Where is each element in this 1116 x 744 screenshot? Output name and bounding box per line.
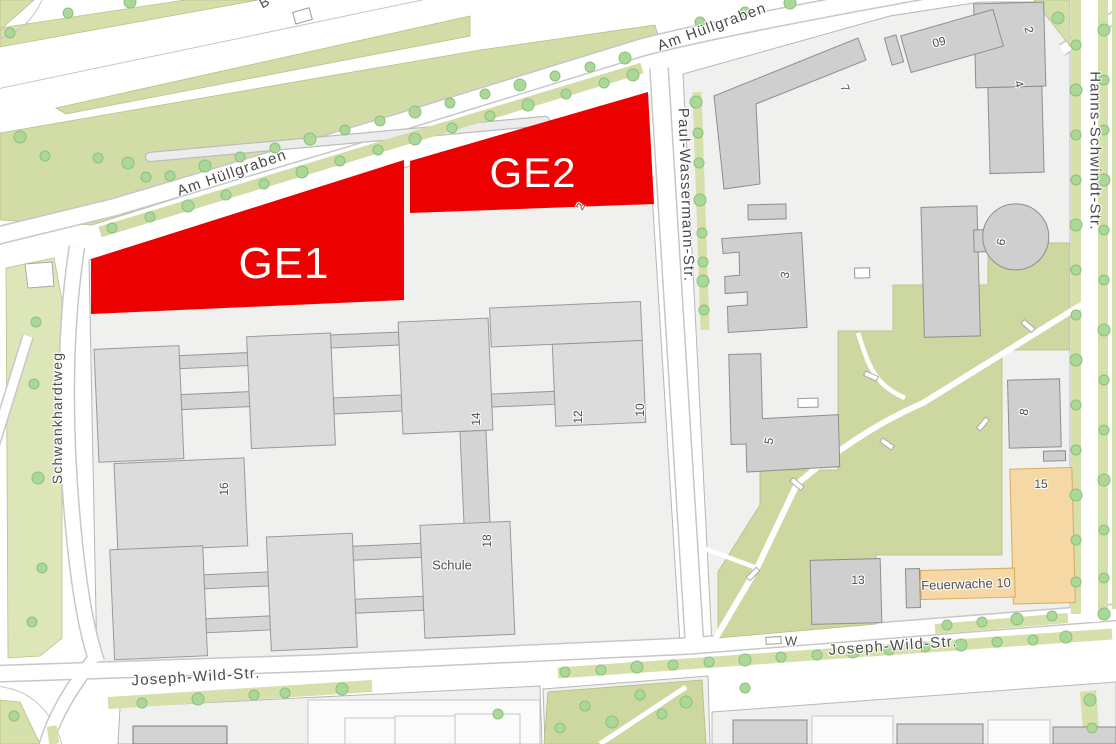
tree-icon (259, 179, 269, 189)
tree-icon (812, 650, 822, 660)
tree-icon (1047, 611, 1057, 621)
housenumber-16: 16 (217, 482, 231, 495)
building-6 (921, 206, 980, 337)
tree-icon (40, 151, 50, 161)
tree-icon (694, 158, 704, 168)
building-grey (733, 720, 807, 744)
tree-icon (699, 305, 709, 315)
tree-icon (296, 166, 308, 178)
tree-icon (668, 660, 678, 670)
tree-icon (1071, 175, 1081, 185)
building-small (748, 204, 786, 220)
school-building (110, 546, 208, 660)
housenumber-18: 18 (480, 534, 494, 547)
tree-icon (522, 99, 534, 111)
plaza-structure (798, 398, 818, 408)
tree-icon (1060, 631, 1072, 643)
tree-icon (1098, 324, 1110, 336)
tree-icon (199, 160, 211, 172)
tree-icon (1028, 635, 1038, 645)
tree-icon (335, 156, 345, 166)
school-corridor (355, 596, 424, 613)
tree-icon (445, 98, 455, 108)
school-corridor (179, 353, 250, 369)
tree-icon (514, 79, 526, 91)
tree-icon (1071, 130, 1081, 140)
building-grey (1053, 727, 1116, 744)
tree-icon (409, 106, 421, 118)
tree-icon (942, 620, 952, 630)
school-building (94, 346, 184, 463)
school-building-schule (420, 521, 515, 638)
zone-label-ge2: GE2 (489, 149, 576, 197)
building-grey (133, 726, 227, 744)
school-corridor (206, 616, 271, 633)
tree-icon (29, 379, 39, 389)
green-sw-corner (0, 700, 40, 744)
tree-icon (409, 133, 421, 145)
tree-icon (137, 698, 147, 708)
tree-icon (493, 709, 503, 719)
tree-icon (596, 665, 606, 675)
housenumber-13: 13 (851, 573, 864, 587)
tree-icon (1099, 425, 1109, 435)
tree-icon (690, 96, 702, 108)
school-corridor (353, 543, 422, 560)
tree-icon (1099, 275, 1109, 285)
school-corridor (460, 430, 490, 526)
tree-icon (977, 617, 987, 627)
tree-icon (1098, 608, 1110, 620)
tree-icon (480, 89, 490, 99)
tree-icon (599, 78, 609, 88)
tree-icon (560, 667, 570, 677)
tree-icon (124, 0, 136, 8)
building-grey (897, 724, 983, 744)
tree-icon (485, 111, 495, 121)
school-building (552, 340, 645, 426)
tree-icon (447, 123, 457, 133)
tree-icon (619, 52, 631, 64)
tree-icon (336, 683, 348, 695)
tree-icon (192, 693, 204, 705)
tree-icon (5, 28, 15, 38)
tree-icon (1070, 489, 1082, 501)
street-label-hanns-schwindt: Hanns-Schwindt-Str. (1087, 71, 1104, 231)
tree-icon (1099, 525, 1109, 535)
school-corridor (204, 572, 269, 589)
tree-icon (141, 172, 151, 182)
tree-icon (776, 652, 786, 662)
tree-icon (145, 212, 155, 222)
tree-icon (1087, 723, 1097, 733)
school-building (114, 458, 248, 552)
tree-icon (32, 472, 44, 484)
tree-icon (555, 723, 565, 733)
school-building (266, 533, 357, 651)
tree-icon (561, 89, 571, 99)
tree-icon (107, 223, 117, 233)
tree-icon (1070, 84, 1082, 96)
building-outline-block (308, 700, 540, 744)
tree-icon (1071, 445, 1081, 455)
tree-icon (627, 69, 639, 81)
tree-icon (1011, 613, 1023, 625)
tree-icon (697, 275, 709, 287)
tree-icon (1098, 24, 1110, 36)
building-4 (988, 86, 1044, 173)
tree-icon (280, 688, 290, 698)
tree-icon (704, 657, 714, 667)
school-corridor (333, 395, 402, 414)
tree-icon (1071, 577, 1081, 587)
tree-icon (697, 228, 707, 238)
housenumber-15: 15 (1034, 477, 1047, 491)
building-grey-bar (905, 569, 920, 608)
tree-icon (739, 654, 751, 666)
tree-icon (375, 116, 385, 126)
traffic-island (25, 262, 54, 288)
tree-icon (1070, 219, 1082, 231)
tree-icon (1071, 310, 1081, 320)
building-label-schule: Schule (432, 558, 472, 573)
tree-icon (631, 661, 643, 673)
tree-icon (1070, 354, 1082, 366)
tree-icon (182, 200, 194, 212)
housenumber-12: 12 (571, 410, 585, 423)
building-13 (810, 559, 882, 625)
tree-icon (606, 716, 618, 728)
street-label-schwankhardtweg: Schwankhardtweg (49, 352, 65, 484)
tree-icon (63, 8, 73, 18)
building-outline (988, 720, 1050, 744)
tree-icon (698, 257, 708, 267)
map-graphics (0, 0, 1116, 744)
building-3 (722, 232, 808, 332)
housenumber-10: 10 (633, 403, 647, 416)
tree-icon (1084, 694, 1096, 706)
building-small (1043, 451, 1065, 462)
map-canvas[interactable]: GE1 GE2 Am Hüllgraben Am Hüllgraben Paul… (0, 0, 1116, 744)
tree-icon (784, 0, 796, 9)
tree-icon (680, 696, 692, 708)
tree-icon (693, 128, 703, 138)
tree-icon (635, 690, 645, 700)
tree-icon (221, 190, 231, 200)
street-label-w-partial: W (785, 634, 797, 649)
tree-icon (31, 317, 41, 327)
tree-icon (550, 71, 560, 81)
housenumber-14: 14 (469, 412, 483, 425)
tree-icon (1099, 573, 1109, 583)
building-outline (812, 716, 893, 744)
tree-icon (1071, 265, 1081, 275)
tree-icon (740, 683, 750, 693)
tree-icon (249, 690, 259, 700)
tree-icon (992, 637, 1002, 647)
tree-icon (1099, 375, 1109, 385)
tree-icon (1071, 400, 1081, 410)
tree-icon (165, 171, 175, 181)
building-label-feuerwache: Feuerwache 10 (921, 575, 1011, 593)
tree-icon (1071, 40, 1081, 50)
tree-icon (9, 711, 19, 721)
tree-icon (37, 563, 47, 573)
tree-icon (1098, 474, 1110, 486)
tree-icon (580, 701, 590, 711)
traffic-island (766, 637, 781, 645)
tree-icon (14, 131, 26, 143)
plaza-structure (855, 268, 870, 278)
tree-icon (1052, 12, 1064, 24)
school-building (490, 301, 643, 347)
school-building (247, 333, 336, 449)
tree-icon (93, 153, 103, 163)
tree-icon (304, 133, 316, 145)
zone-label-ge1: GE1 (238, 239, 329, 289)
tree-icon (122, 157, 134, 169)
tree-icon (694, 194, 706, 206)
tree-icon (657, 709, 667, 719)
tree-icon (585, 62, 595, 72)
school-corridor (331, 332, 400, 348)
tree-icon (1071, 535, 1081, 545)
tree-icon (340, 125, 350, 135)
school-corridor (491, 391, 555, 407)
tree-icon (373, 145, 383, 155)
building-small-nw (293, 8, 313, 24)
tree-icon (27, 617, 37, 627)
school-corridor (181, 392, 252, 410)
